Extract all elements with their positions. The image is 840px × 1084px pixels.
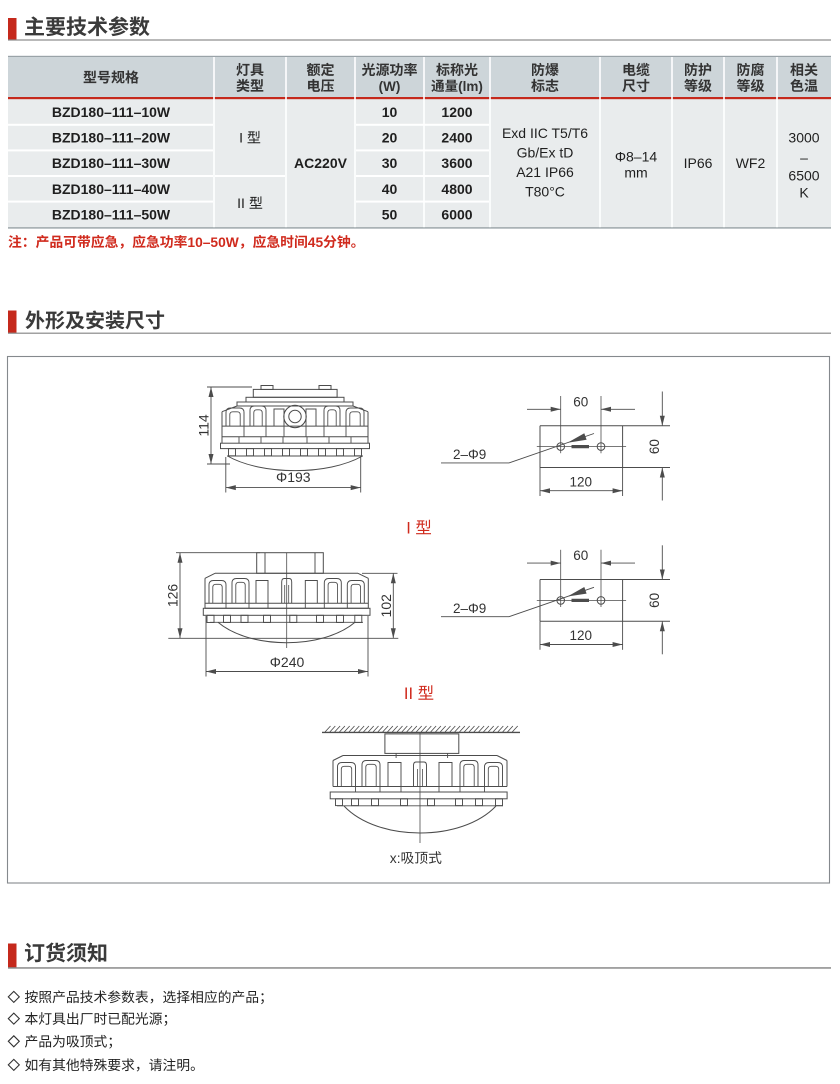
svg-text:K: K [799, 185, 809, 201]
svg-text:2–Φ9: 2–Φ9 [453, 447, 486, 462]
svg-text:114: 114 [196, 414, 212, 437]
svg-text:(lm): (lm) [458, 79, 483, 94]
svg-text:120: 120 [570, 474, 593, 489]
svg-text:45: 45 [308, 235, 324, 250]
svg-text:102: 102 [378, 594, 394, 618]
svg-text:60: 60 [647, 593, 662, 608]
svg-text:60: 60 [573, 548, 588, 563]
svg-text:II: II [404, 685, 413, 703]
svg-text:AC220V: AC220V [294, 155, 348, 171]
svg-text:I: I [239, 130, 243, 146]
svg-text:30: 30 [382, 155, 398, 171]
svg-text:(W): (W) [379, 79, 401, 94]
svg-text:6000: 6000 [441, 206, 472, 222]
svg-text:60: 60 [647, 439, 662, 454]
svg-text:–: – [800, 150, 808, 166]
svg-text:4800: 4800 [441, 181, 472, 197]
svg-text:120: 120 [570, 628, 593, 643]
svg-text:Exd IIC T5/T6: Exd IIC T5/T6 [502, 125, 588, 141]
svg-text:Φ193: Φ193 [276, 469, 311, 485]
svg-text:40: 40 [382, 181, 398, 197]
svg-text:BZD180–111–30W: BZD180–111–30W [52, 155, 171, 171]
svg-text:50: 50 [382, 206, 398, 222]
svg-text:20: 20 [382, 130, 398, 146]
svg-text:BZD180–111–40W: BZD180–111–40W [52, 181, 171, 197]
svg-text:IP66: IP66 [684, 155, 713, 171]
svg-text:2–Φ9: 2–Φ9 [453, 601, 486, 616]
svg-text:Φ240: Φ240 [270, 654, 305, 670]
svg-text:10: 10 [382, 104, 398, 120]
svg-text:x:: x: [390, 851, 401, 866]
svg-text:126: 126 [165, 584, 181, 608]
svg-text:mm: mm [624, 165, 647, 181]
svg-text:3000: 3000 [788, 130, 819, 146]
svg-text:Φ8–14: Φ8–14 [615, 149, 658, 165]
svg-text:I: I [406, 520, 411, 538]
svg-text:T80°C: T80°C [525, 184, 565, 200]
svg-text:BZD180–111–50W: BZD180–111–50W [52, 206, 171, 222]
svg-text:II: II [237, 195, 245, 211]
svg-text:60: 60 [573, 394, 588, 409]
svg-text:2400: 2400 [441, 130, 472, 146]
svg-text:6500: 6500 [788, 167, 819, 183]
svg-text:WF2: WF2 [736, 155, 766, 171]
svg-text:BZD180–111–10W: BZD180–111–10W [52, 104, 171, 120]
svg-text:A21 IP66: A21 IP66 [516, 164, 574, 180]
svg-text:BZD180–111–20W: BZD180–111–20W [52, 130, 171, 146]
svg-text:3600: 3600 [441, 155, 472, 171]
svg-text:1200: 1200 [441, 104, 472, 120]
svg-text:Gb/Ex tD: Gb/Ex tD [517, 145, 574, 161]
svg-text:10–50W: 10–50W [187, 235, 239, 250]
